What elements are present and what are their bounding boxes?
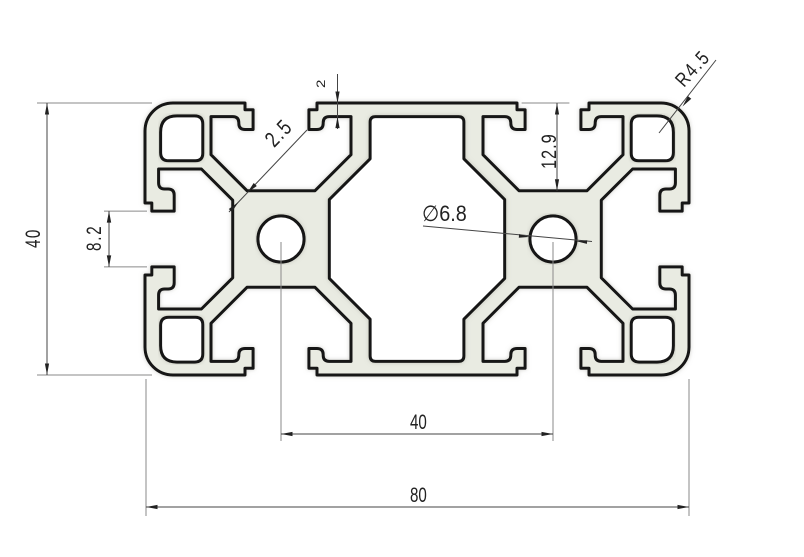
svg-text:8.2: 8.2 bbox=[81, 225, 105, 251]
svg-text:40: 40 bbox=[410, 409, 427, 433]
svg-text:∅6.8: ∅6.8 bbox=[422, 202, 467, 226]
svg-text:2: 2 bbox=[315, 80, 328, 88]
svg-text:12.9: 12.9 bbox=[537, 133, 560, 169]
svg-text:80: 80 bbox=[410, 482, 427, 506]
svg-text:40: 40 bbox=[20, 228, 44, 248]
